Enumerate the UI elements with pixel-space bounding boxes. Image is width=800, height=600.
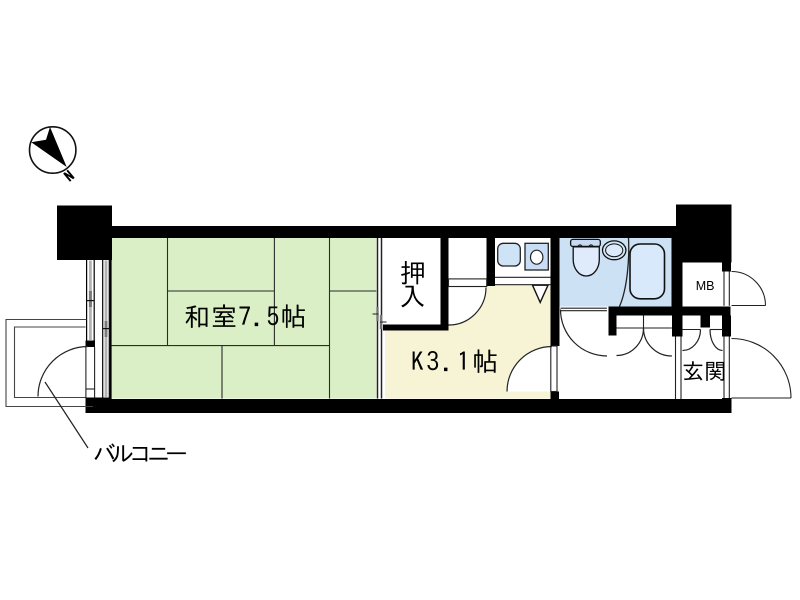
svg-text:MB: MB [696, 279, 715, 293]
